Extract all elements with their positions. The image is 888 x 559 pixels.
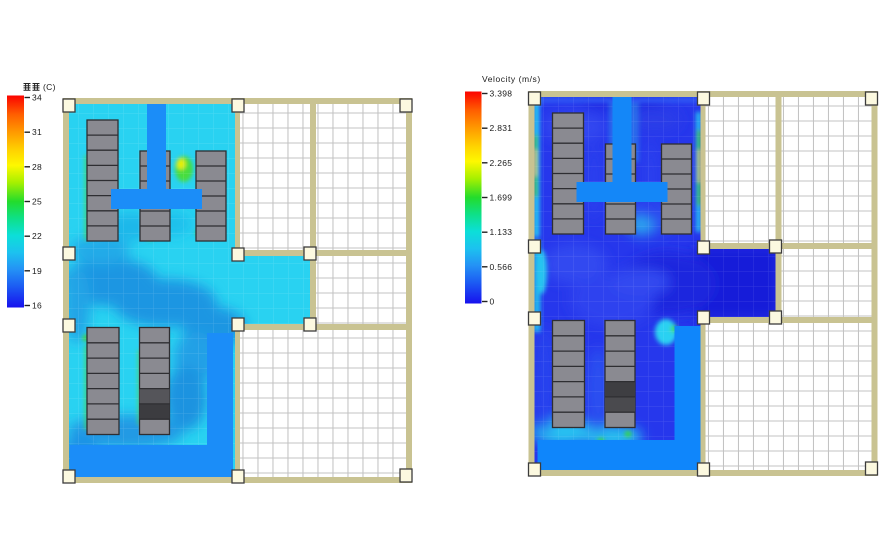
svg-text:19: 19 bbox=[32, 266, 42, 276]
svg-text:3.398: 3.398 bbox=[490, 89, 513, 99]
svg-text:1.699: 1.699 bbox=[490, 193, 513, 203]
svg-text:1.133: 1.133 bbox=[490, 227, 513, 237]
svg-text:2.265: 2.265 bbox=[490, 158, 513, 168]
svg-text:25: 25 bbox=[32, 197, 42, 207]
svg-text:(C): (C) bbox=[43, 82, 56, 92]
svg-text:22: 22 bbox=[32, 231, 42, 241]
svg-text:2.831: 2.831 bbox=[490, 123, 513, 133]
svg-text:Velocity (m/s): Velocity (m/s) bbox=[482, 74, 541, 84]
svg-text:28: 28 bbox=[32, 162, 42, 172]
svg-text:34: 34 bbox=[32, 93, 42, 103]
svg-text:31: 31 bbox=[32, 127, 42, 137]
svg-text:0.566: 0.566 bbox=[490, 262, 513, 272]
svg-text:0: 0 bbox=[490, 297, 495, 307]
svg-text:16: 16 bbox=[32, 301, 42, 311]
